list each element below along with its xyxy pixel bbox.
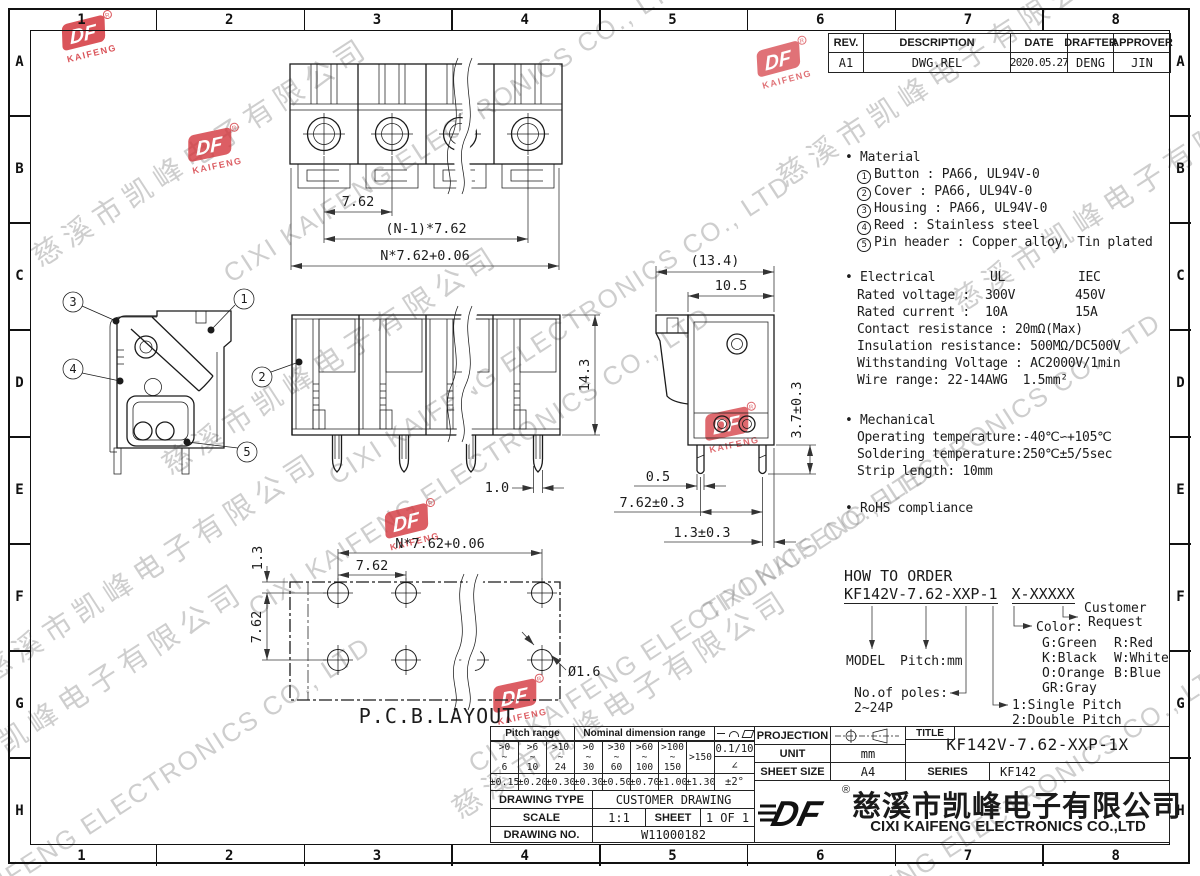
tol-range-cell: >150 [686, 741, 715, 774]
order-customer-2: Request [1088, 615, 1143, 630]
note-material-item: 1Button : PA66, UL94V-0 [857, 167, 1040, 184]
tol-symbols-header [714, 726, 755, 741]
tol-value-cell: ±0.15 [490, 773, 519, 791]
dim-pcb-hole: Ø1.6 [568, 664, 601, 680]
drawing-type-label: DRAWING TYPE [490, 790, 593, 809]
tol-range-cell: >60~100 [630, 741, 659, 774]
tol-value-cell: ±0.20 [518, 773, 547, 791]
tol-value-cell: ±0.50 [602, 773, 631, 791]
dim-pcb-row: 7.62 [249, 611, 265, 644]
dim-front-pin: 1.0 [485, 480, 509, 496]
balloon-3: 3 [69, 295, 76, 309]
dim-side-pin: 0.5 [646, 469, 670, 485]
arc-icon [729, 731, 739, 737]
note-line: IEC [1078, 270, 1101, 285]
unit-label: UNIT [754, 744, 831, 763]
tol-range-cell: >100~150 [658, 741, 687, 774]
company-reg-mark: ® [842, 784, 850, 796]
dim-side-edge: 1.3±0.3 [674, 525, 731, 541]
note-section-title: • Material [845, 150, 920, 165]
tol-value-cell: ±0.30 [546, 773, 575, 791]
note-material-item: 3Housing : PA66, UL94V-0 [857, 201, 1047, 218]
drawing-type-value: CUSTOMER DRAWING [592, 790, 755, 809]
dim-side-tail: 3.7±0.3 [789, 382, 805, 439]
circled-number-icon: 5 [857, 238, 871, 252]
projection-symbol [830, 726, 906, 745]
sheet-size-label: SHEET SIZE [754, 762, 831, 781]
sheet-size-value: A4 [830, 762, 906, 781]
note-line: Operating temperature:-40℃∽+105℃ [857, 430, 1111, 445]
parallelogram-icon [741, 730, 754, 738]
note-line: Rated current : [857, 305, 970, 320]
view-side: (13.4) 10.5 3.7±0.3 0.5 7.62±0.3 1.3±0.3 [614, 253, 816, 548]
tol-value-cell: ±0.70 [630, 773, 659, 791]
dim-side-body: 10.5 [715, 278, 748, 294]
order-single-pitch: 1:Single Pitch [1012, 698, 1122, 713]
order-poles-label: No.of poles: [854, 686, 948, 701]
note-section-title: • Mechanical [845, 413, 935, 428]
balloon-1: 1 [240, 292, 247, 306]
order-pitch-label: Pitch:mm [900, 654, 963, 669]
view-section: 3 1 4 5 [63, 289, 257, 474]
note-line: Contact resistance : 20mΩ(Max) [857, 322, 1083, 337]
tol-value-cell: ±1.30 [686, 773, 715, 791]
drawing-title: KF142V-7.62-XXP-1X [946, 735, 1128, 754]
tol-range-cell: >10~24 [546, 741, 575, 774]
series-value: KF142 [989, 762, 1170, 781]
first-angle-projection-icon [833, 728, 903, 744]
dim-pcb-edge: 1.3 [250, 546, 266, 570]
tol-angle-symbol: ∠ [714, 756, 755, 774]
view-pcb-layout: N*7.62+0.06 7.62 1.3 7.62 Ø1.6 P.C.B.LAY… [249, 536, 601, 728]
note-section-title: • Electrical [845, 270, 935, 285]
note-material-item: 2Cover : PA66, UL94V-0 [857, 184, 1032, 201]
circled-number-icon: 2 [857, 187, 871, 201]
note-line: UL [990, 270, 1005, 285]
circled-number-icon: 4 [857, 221, 871, 235]
sheet-label: SHEET [645, 808, 701, 827]
note-section-title: • RoHS compliance [845, 501, 973, 516]
dim-pcb-col: 7.62 [356, 558, 389, 574]
tol-value-cell: ±1.00 [658, 773, 687, 791]
view-front: 2 14.3 1.0 [252, 306, 600, 496]
order-color-list-left: G:GreenK:BlackO:OrangeGR:Gray [1042, 636, 1105, 696]
df-logo-text: DF [768, 794, 828, 834]
scale-label: SCALE [490, 808, 593, 827]
note-line: Withstanding Voltage : AC2000V/1min [857, 356, 1120, 371]
tol-angle-value: ±2° [714, 773, 755, 791]
straightness-icon [717, 733, 725, 734]
company-df-logo: DF [758, 792, 838, 836]
balloon-5: 5 [243, 445, 250, 459]
dim-side-overall: (13.4) [691, 253, 740, 269]
circled-number-icon: 1 [857, 170, 871, 184]
circled-number-icon: 3 [857, 204, 871, 218]
dim-pcb-total: N*7.62+0.06 [395, 536, 484, 552]
note-line: 450V [1075, 288, 1105, 303]
tol-range-cell: >6~10 [518, 741, 547, 774]
scale-value: 1:1 [592, 808, 646, 827]
note-line: Strip length: 10mm [857, 464, 992, 479]
tol-range-cell: >0~6 [490, 741, 519, 774]
dim-side-pitch: 7.62±0.3 [619, 495, 684, 511]
projection-label: PROJECTION [754, 726, 831, 745]
dim-top-n1: (N-1)*7.62 [385, 221, 466, 237]
drawing-no-value: W11000182 [592, 826, 755, 843]
title-block: Pitch range Nominal dimension range >0~6… [490, 726, 1170, 843]
order-color-list-right: R:RedW:WhiteB:Blue [1114, 636, 1169, 681]
order-color-title: Color: [1036, 620, 1083, 635]
tol-nominal-header: Nominal dimension range [574, 726, 715, 741]
order-poles-range: 2~24P [854, 701, 893, 716]
dim-top-pitch: 7.62 [342, 194, 375, 210]
company-name-en: CIXI KAIFENG ELECTRONICS CO.,LTD [852, 818, 1164, 835]
note-material-item: 5Pin header : Copper alloy, Tin plated [857, 235, 1153, 252]
dim-front-height: 14.3 [577, 359, 593, 392]
order-model-label: MODEL [846, 654, 885, 669]
note-line: 15A [1075, 305, 1098, 320]
note-line: Wire range: 22-14AWG 1.5mm² [857, 373, 1068, 388]
title-label: TITLE [905, 726, 955, 740]
note-line: Rated voltage : [857, 288, 970, 303]
tol-pitch-header: Pitch range [490, 726, 575, 741]
note-line: Soldering temperature:250℃±5/5sec [857, 447, 1112, 462]
how-to-order: HOW TO ORDER KF142V-7.62-XXP-1X-XXXXX MO… [838, 565, 1180, 731]
pcb-layout-label: P.C.B.LAYOUT [359, 704, 516, 728]
view-top: 7.62 (N-1)*7.62 N*7.62+0.06 [290, 58, 562, 270]
note-material-item: 4Reed : Stainless steel [857, 218, 1040, 235]
balloon-4: 4 [69, 362, 76, 376]
sheet-value: 1 OF 1 [700, 808, 755, 827]
note-line: 300V [985, 288, 1015, 303]
tol-value-cell: ±0.30 [574, 773, 603, 791]
balloon-2: 2 [258, 370, 265, 384]
order-customer-1: Customer [1084, 601, 1147, 616]
tol-flatness: 0.1/10 [714, 741, 755, 757]
series-label: SERIES [905, 762, 990, 781]
engineering-drawing-sheet: 慈溪市凯峰电子有限公司CIXI KAIFENG ELECTRONICS CO.,… [0, 0, 1200, 876]
drawing-no-label: DRAWING NO. [490, 826, 593, 843]
note-line: Insulation resistance: 500MΩ/DC500V [857, 339, 1120, 354]
tol-range-cell: >30~60 [602, 741, 631, 774]
tol-range-cell: >0~30 [574, 741, 603, 774]
dim-top-total: N*7.62+0.06 [380, 248, 469, 264]
note-line: 10A [985, 305, 1008, 320]
unit-value: mm [830, 744, 906, 763]
